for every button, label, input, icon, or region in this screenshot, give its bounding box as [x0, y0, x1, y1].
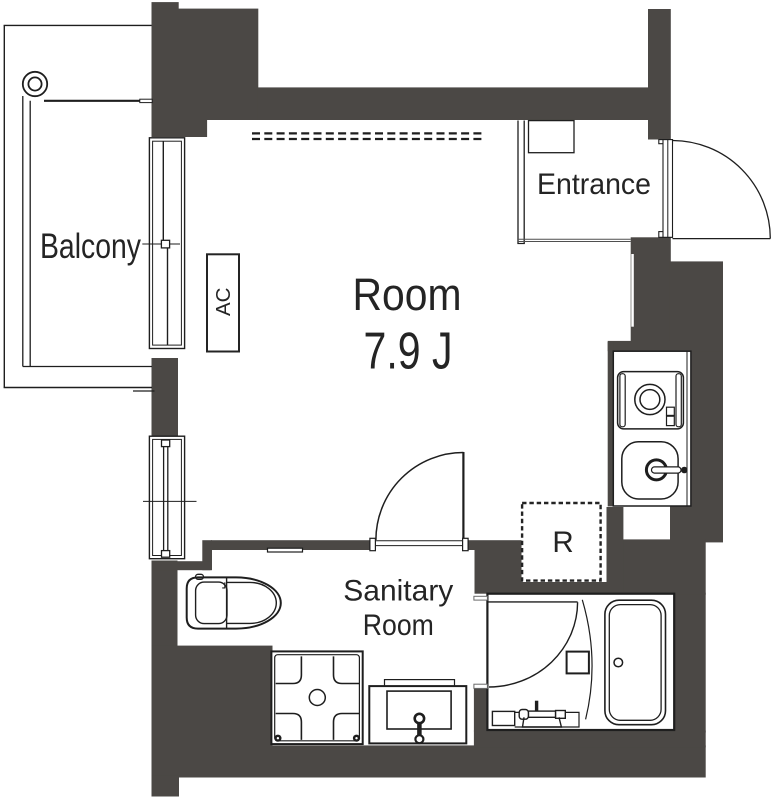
svg-text:Entrance: Entrance — [537, 168, 651, 201]
svg-text:R: R — [552, 526, 573, 559]
svg-text:Sanitary: Sanitary — [343, 575, 453, 607]
svg-text:Balcony: Balcony — [40, 226, 141, 266]
svg-text:Room: Room — [353, 269, 462, 320]
svg-text:AC: AC — [212, 287, 235, 316]
svg-text:Room: Room — [363, 610, 434, 642]
svg-text:7.9 J: 7.9 J — [364, 322, 453, 380]
